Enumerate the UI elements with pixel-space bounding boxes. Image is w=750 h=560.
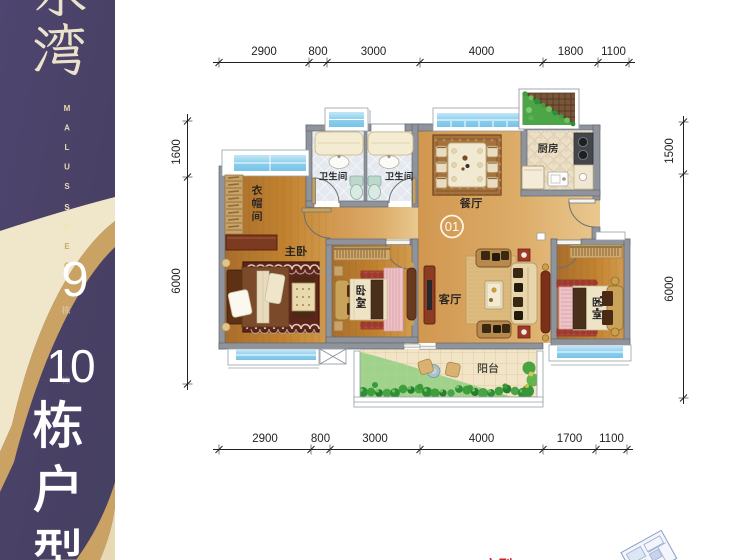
svg-text:M: M [64, 104, 71, 113]
svg-text:1600: 1600 [171, 139, 183, 165]
svg-text:4000: 4000 [469, 433, 495, 445]
svg-text:6000: 6000 [171, 268, 183, 294]
svg-text:4000: 4000 [469, 46, 495, 58]
svg-text:E: E [64, 242, 70, 251]
svg-text:S: S [64, 182, 70, 191]
svg-text:9: 9 [61, 253, 88, 307]
svg-text:1500: 1500 [664, 138, 676, 164]
svg-text:1100: 1100 [599, 433, 624, 445]
svg-text:6000: 6000 [664, 276, 676, 302]
svg-text:800: 800 [308, 46, 327, 58]
svg-text:1700: 1700 [557, 433, 583, 445]
svg-text:01: 01 [445, 219, 459, 234]
svg-text:3000: 3000 [362, 433, 388, 445]
svg-text:U: U [64, 163, 70, 172]
svg-text:2900: 2900 [252, 433, 278, 445]
svg-text:A: A [64, 124, 70, 133]
svg-text:1800: 1800 [558, 46, 584, 58]
svg-text:1100: 1100 [601, 46, 626, 58]
svg-text:800: 800 [311, 433, 330, 445]
svg-text:2900: 2900 [251, 46, 277, 58]
svg-text:10: 10 [46, 340, 94, 392]
svg-text:3000: 3000 [361, 46, 387, 58]
svg-text:P: P [64, 223, 70, 232]
svg-text:L: L [65, 143, 70, 152]
svg-text:S: S [64, 203, 70, 212]
